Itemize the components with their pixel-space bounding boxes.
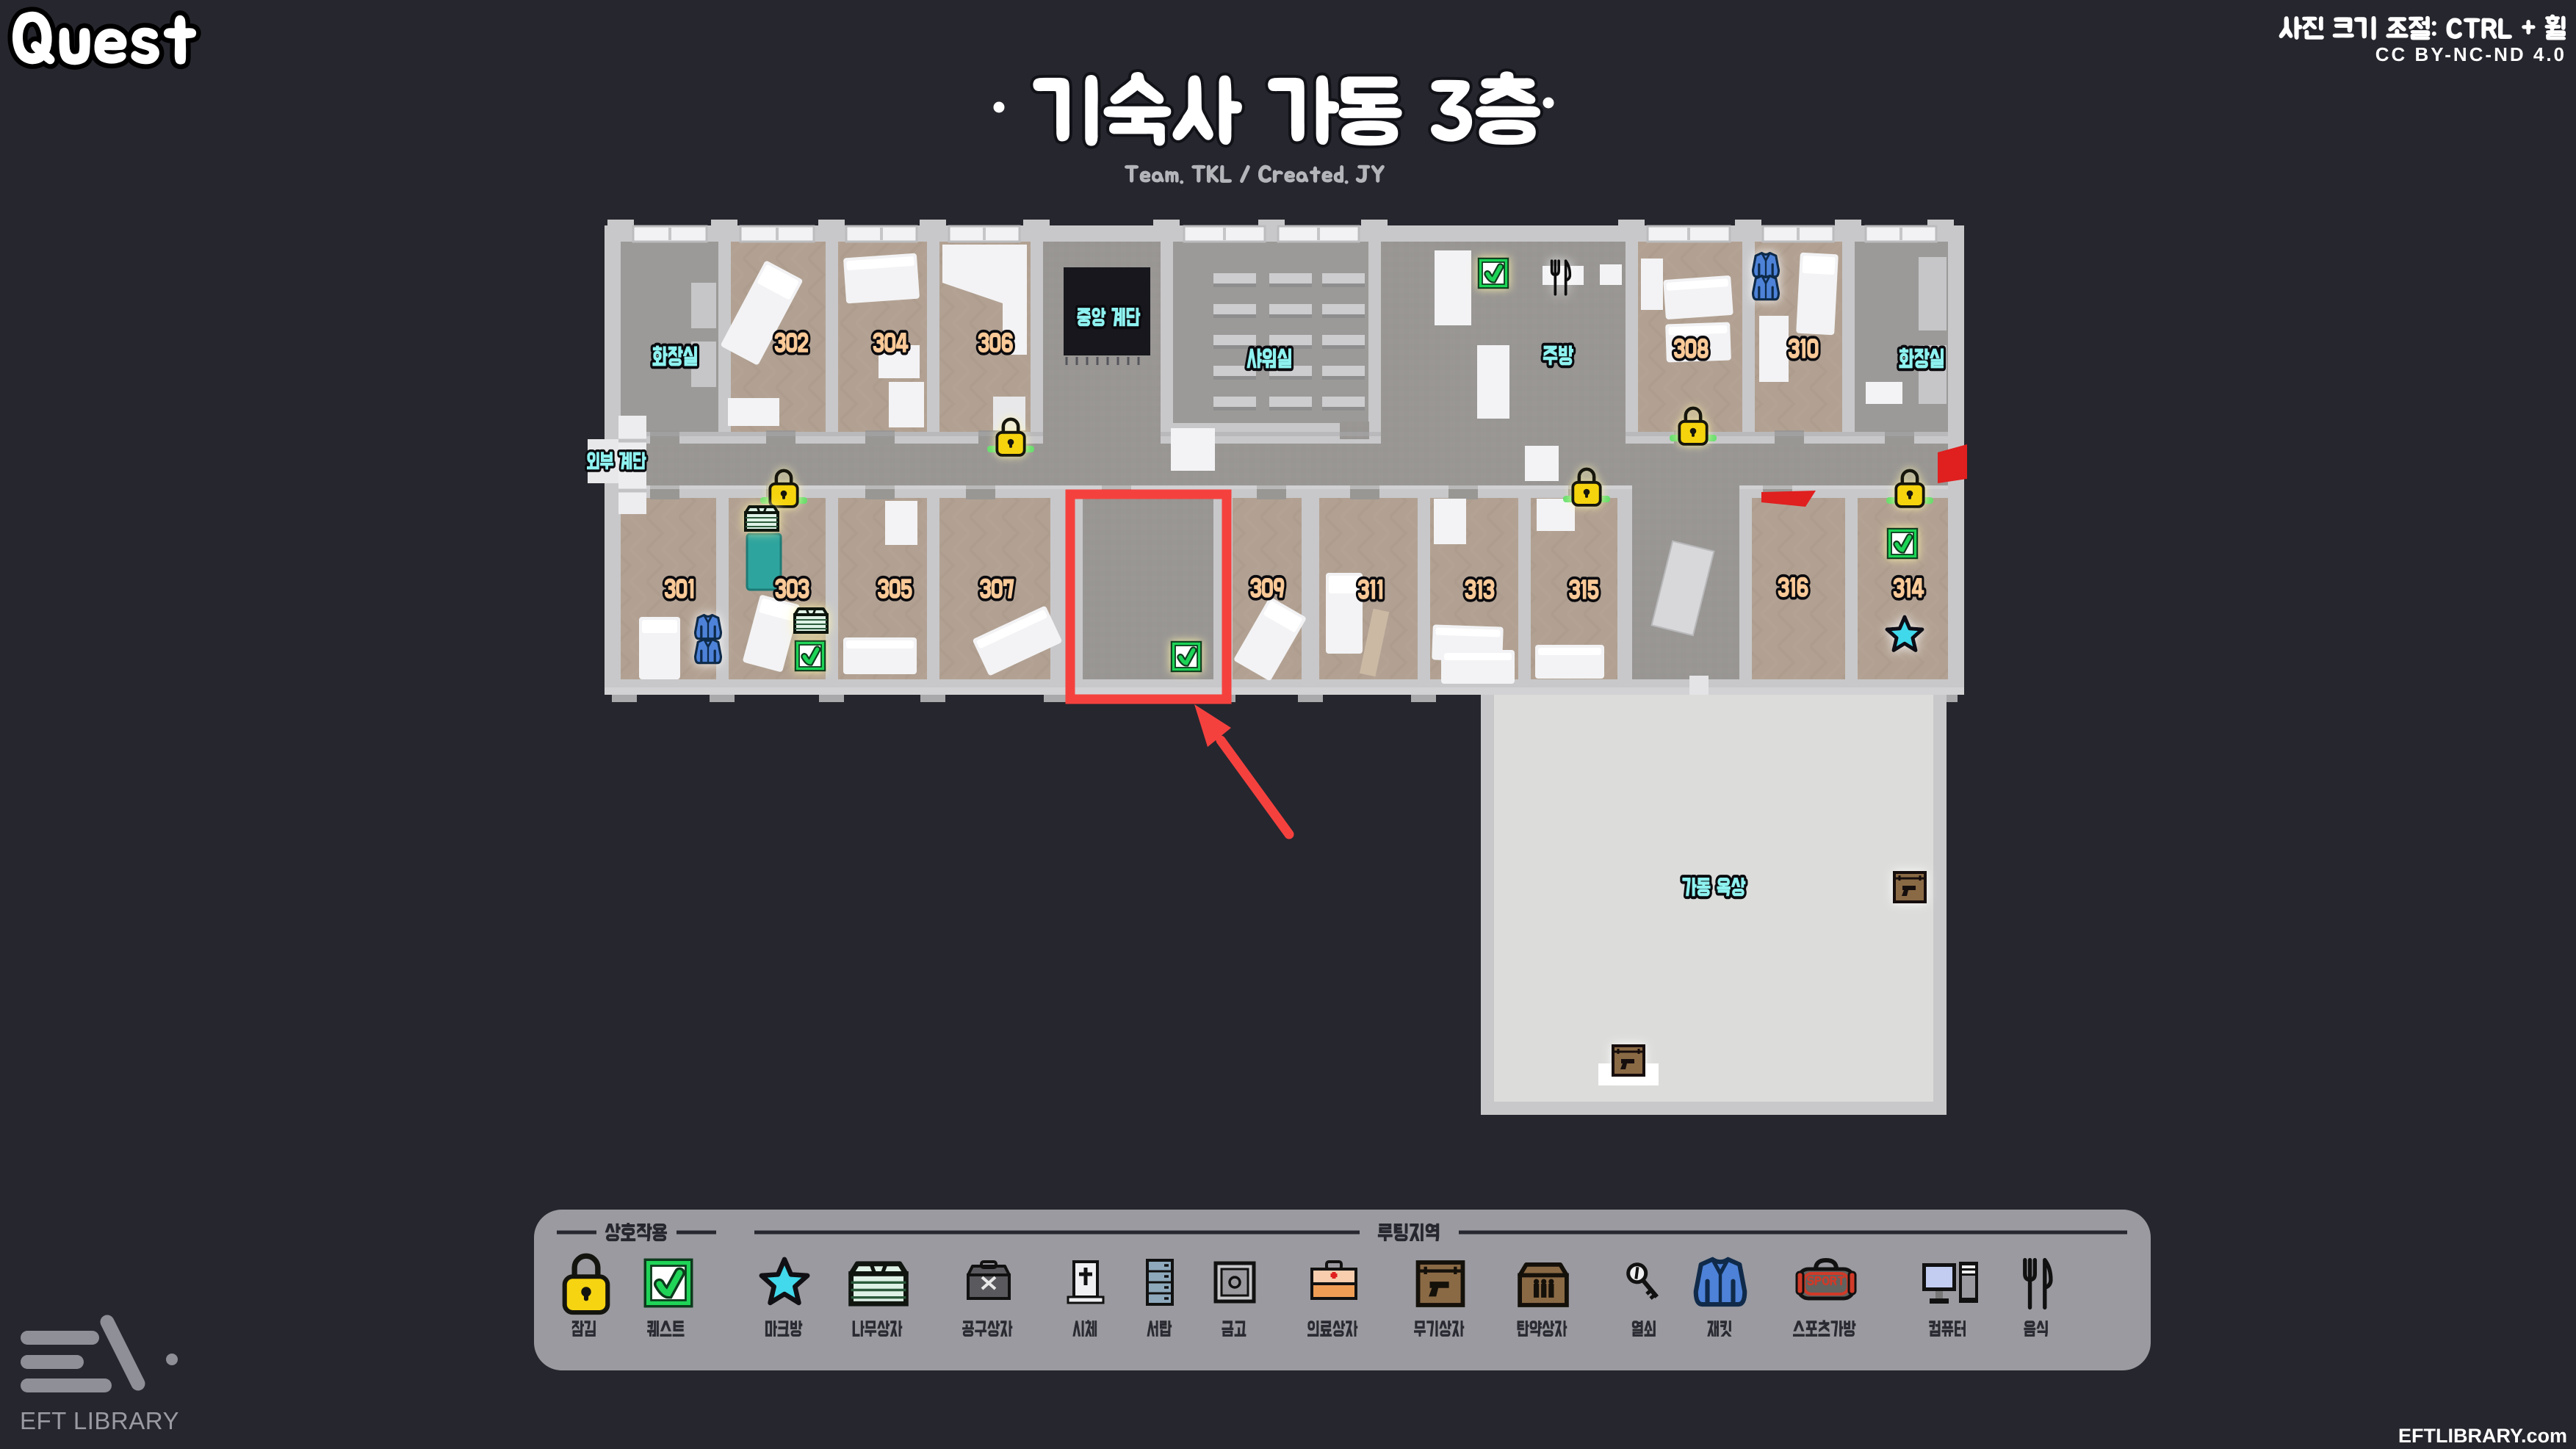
svg-text:EFT LIBRARY: EFT LIBRARY <box>20 1407 179 1434</box>
svg-text:CC BY-NC-ND 4.0: CC BY-NC-ND 4.0 <box>2375 43 2566 65</box>
svg-text:EFTLIBRARY.com: EFTLIBRARY.com <box>2398 1425 2567 1447</box>
